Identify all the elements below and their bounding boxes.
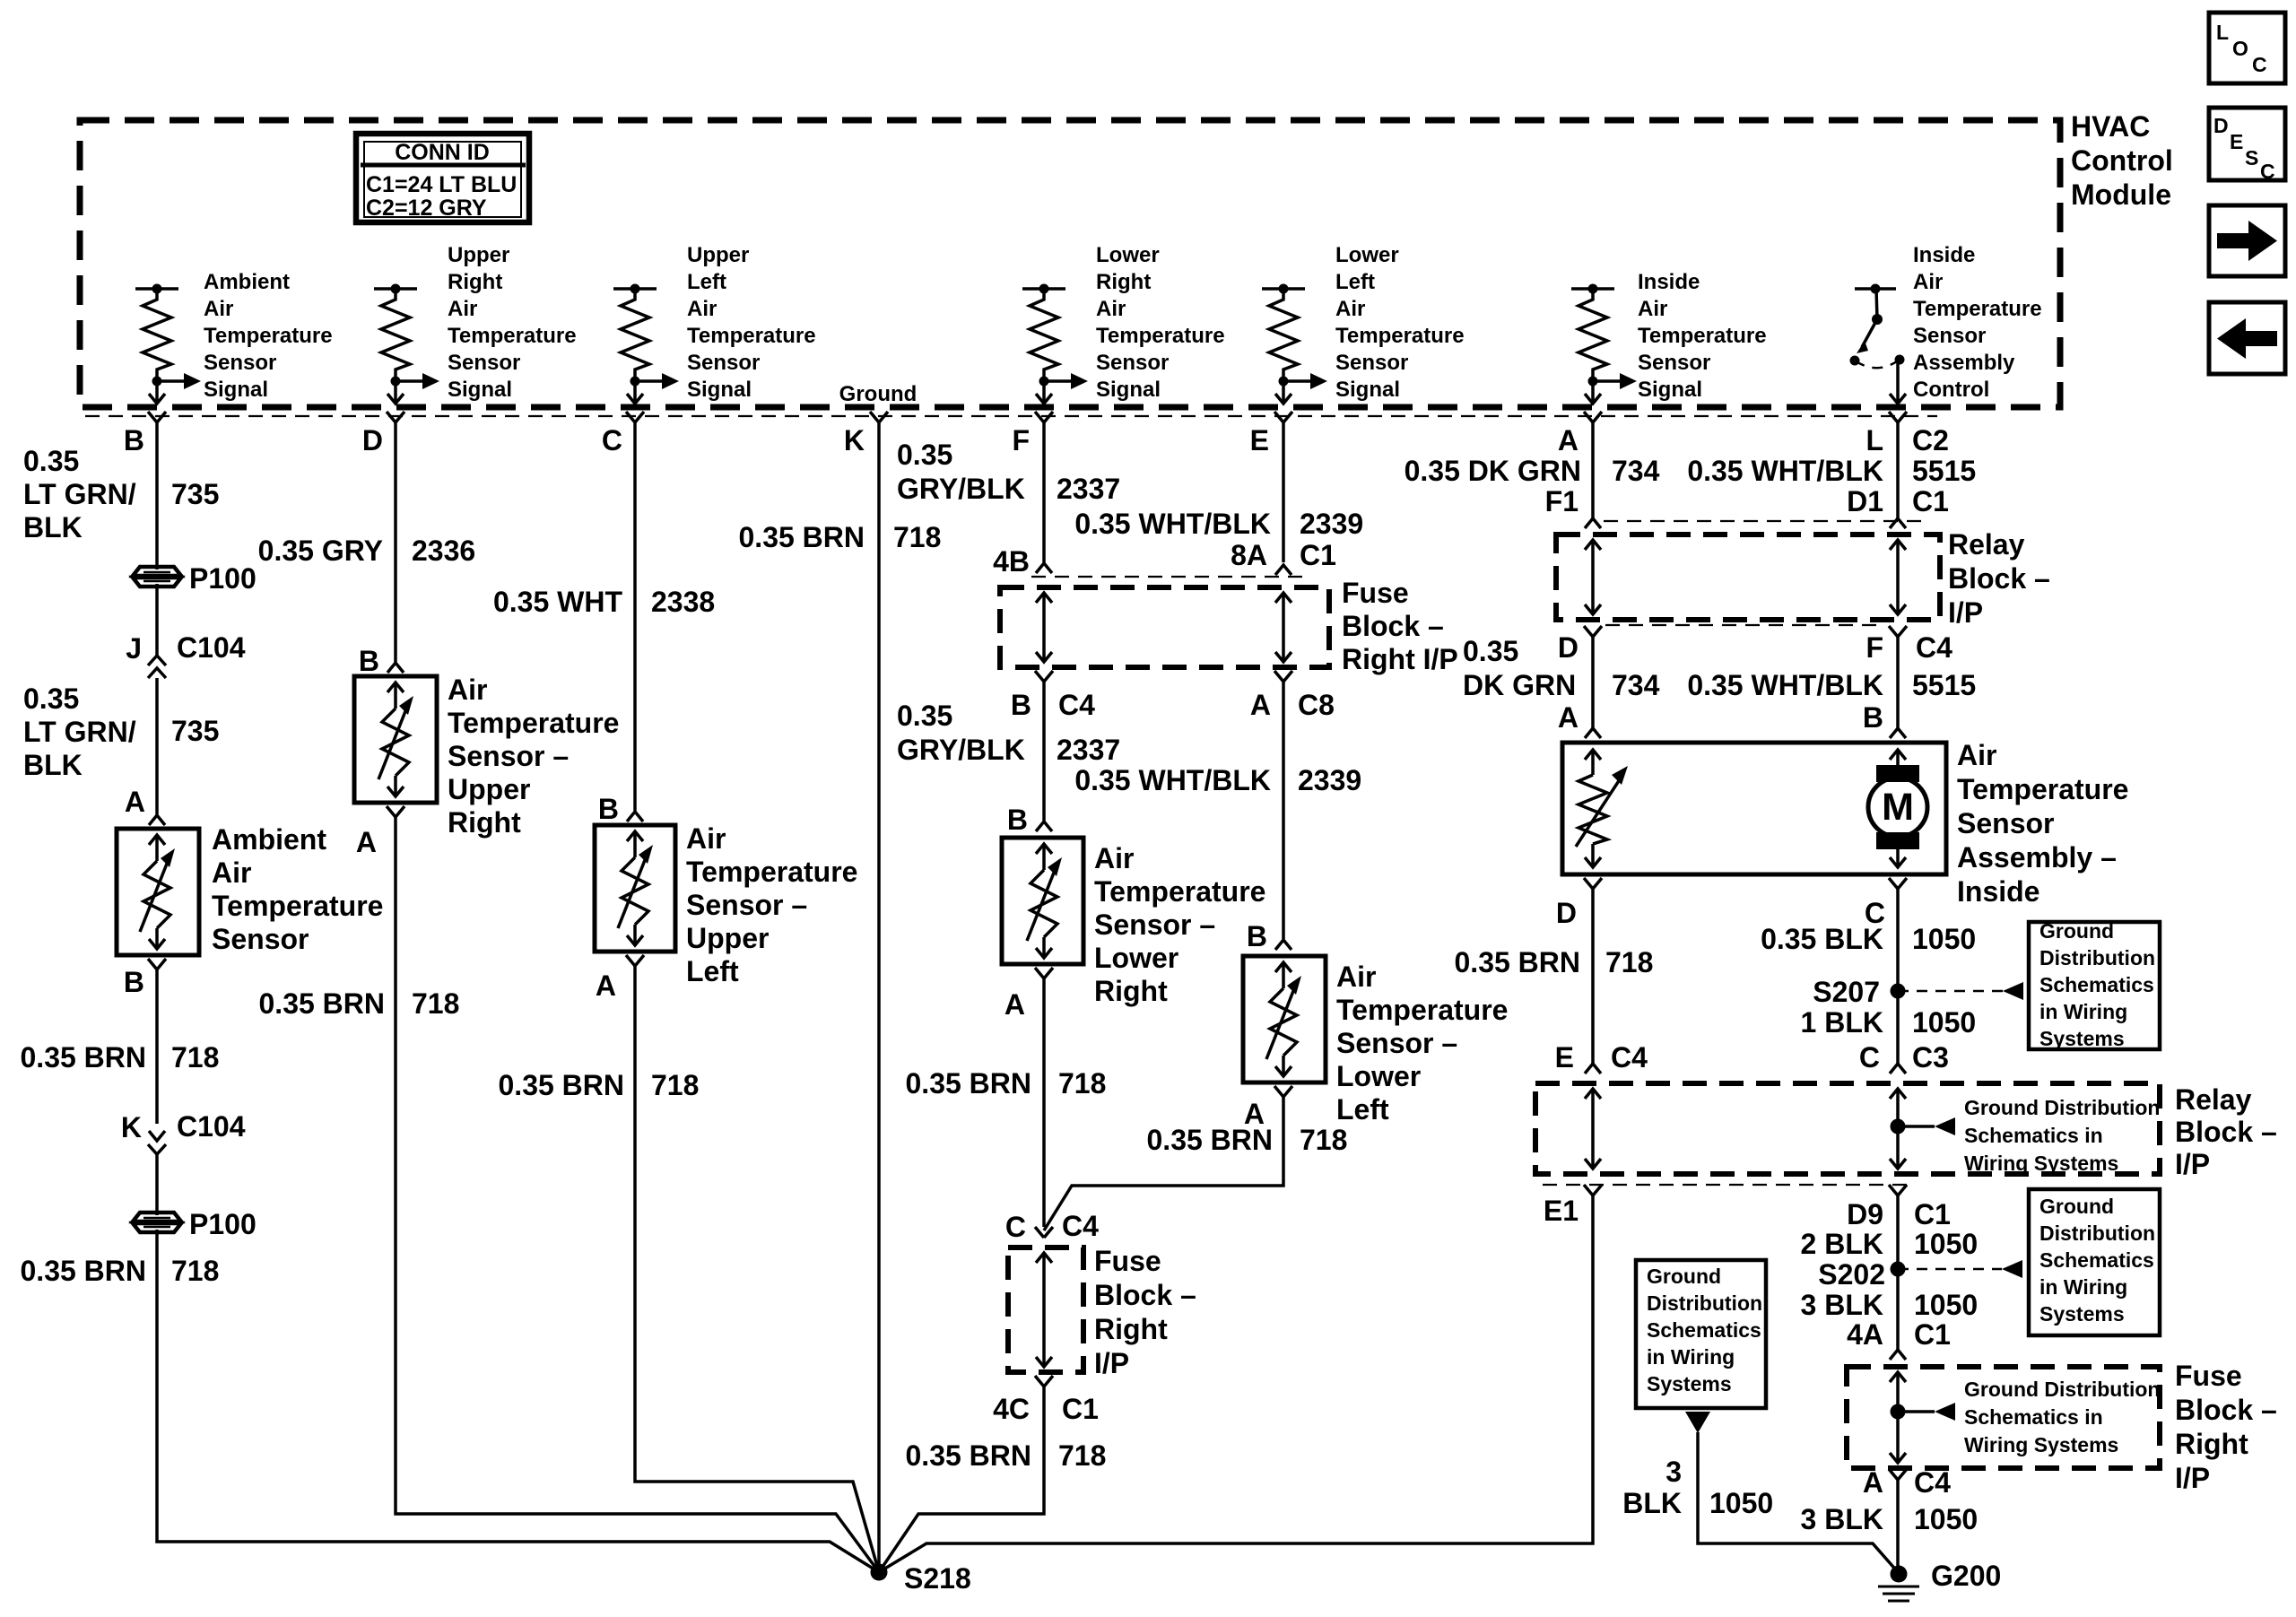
- svg-text:B: B: [1007, 804, 1028, 836]
- svg-text:A: A: [356, 826, 377, 858]
- svg-text:0.35 BRN: 0.35 BRN: [1455, 946, 1581, 978]
- svg-text:BLK: BLK: [23, 511, 83, 543]
- svg-text:5515: 5515: [1912, 669, 1976, 701]
- svg-text:L: L: [1865, 424, 1883, 456]
- svg-text:D: D: [1558, 631, 1578, 664]
- svg-text:A: A: [1250, 689, 1271, 721]
- svg-text:Sensor: Sensor: [212, 923, 309, 955]
- svg-text:K: K: [844, 424, 865, 456]
- svg-text:Sensor: Sensor: [1335, 351, 1408, 375]
- svg-text:B: B: [1247, 920, 1267, 952]
- svg-text:0.35 GRY: 0.35 GRY: [258, 535, 383, 567]
- svg-text:Sensor: Sensor: [204, 351, 276, 375]
- svg-text:4A: 4A: [1847, 1318, 1883, 1351]
- svg-text:Temperature: Temperature: [212, 890, 383, 922]
- svg-text:Upper: Upper: [686, 922, 769, 954]
- svg-text:D: D: [1556, 897, 1577, 929]
- svg-text:K: K: [121, 1111, 142, 1143]
- svg-text:Signal: Signal: [687, 378, 752, 402]
- svg-text:Fuse: Fuse: [2175, 1360, 2242, 1392]
- svg-text:Block –: Block –: [1342, 610, 1444, 642]
- svg-text:Signal: Signal: [1638, 378, 1702, 402]
- svg-text:0.35 DK GRN: 0.35 DK GRN: [1405, 455, 1581, 487]
- svg-text:1050: 1050: [1914, 1228, 1978, 1260]
- svg-text:Schematics: Schematics: [1647, 1318, 1761, 1342]
- svg-text:Air: Air: [448, 297, 477, 321]
- svg-text:718: 718: [171, 1041, 219, 1074]
- svg-text:Inside: Inside: [1913, 243, 1975, 267]
- svg-text:718: 718: [1058, 1439, 1106, 1472]
- svg-text:Systems: Systems: [1647, 1372, 1732, 1395]
- svg-text:C: C: [1005, 1211, 1026, 1243]
- svg-text:I/P: I/P: [2175, 1148, 2210, 1180]
- svg-text:C1=24 LT BLU: C1=24 LT BLU: [366, 172, 517, 197]
- svg-text:2339: 2339: [1300, 508, 1363, 540]
- svg-text:Schematics in: Schematics in: [1964, 1405, 2103, 1429]
- svg-text:Left: Left: [687, 270, 726, 294]
- svg-text:Ground Distribution: Ground Distribution: [1964, 1096, 2160, 1119]
- svg-text:Right: Right: [448, 270, 502, 294]
- svg-text:0.35 BRN: 0.35 BRN: [739, 521, 865, 553]
- svg-text:A: A: [1558, 424, 1578, 456]
- svg-text:C2: C2: [1912, 424, 1949, 456]
- svg-text:F1: F1: [1545, 485, 1578, 517]
- svg-text:BLK: BLK: [23, 749, 83, 781]
- svg-text:Air: Air: [212, 856, 251, 889]
- svg-text:HVAC: HVAC: [2071, 110, 2150, 143]
- svg-text:Air: Air: [1957, 739, 1996, 771]
- svg-text:in Wiring: in Wiring: [1647, 1345, 1735, 1369]
- svg-text:C4: C4: [1914, 1466, 1951, 1499]
- svg-text:E: E: [2230, 130, 2243, 153]
- svg-text:Schematics: Schematics: [2039, 1248, 2154, 1272]
- svg-text:1050: 1050: [1914, 1503, 1978, 1535]
- svg-text:Lower: Lower: [1094, 942, 1178, 974]
- svg-text:3: 3: [1665, 1456, 1682, 1488]
- svg-text:0.35 WHT/BLK: 0.35 WHT/BLK: [1074, 764, 1271, 796]
- svg-text:Right: Right: [1094, 975, 1168, 1007]
- svg-text:O: O: [2232, 37, 2248, 60]
- svg-text:Upper: Upper: [448, 773, 530, 805]
- svg-text:0.35 BRN: 0.35 BRN: [906, 1439, 1032, 1472]
- svg-text:B: B: [124, 966, 144, 998]
- svg-text:Lower: Lower: [1096, 243, 1160, 267]
- svg-text:D9: D9: [1847, 1198, 1883, 1230]
- svg-text:718: 718: [1300, 1124, 1347, 1156]
- svg-text:4B: 4B: [993, 545, 1030, 578]
- svg-text:I/P: I/P: [1948, 596, 1983, 629]
- svg-text:Schematics: Schematics: [2039, 973, 2154, 996]
- svg-text:Fuse: Fuse: [1094, 1245, 1161, 1277]
- svg-text:Ground Distribution: Ground Distribution: [1964, 1378, 2160, 1401]
- svg-text:Air: Air: [1335, 297, 1365, 321]
- svg-text:I/P: I/P: [1094, 1347, 1129, 1379]
- svg-text:Temperature: Temperature: [448, 707, 619, 739]
- svg-text:Block –: Block –: [1948, 562, 2050, 595]
- svg-text:C8: C8: [1298, 689, 1335, 721]
- svg-text:Right: Right: [2175, 1428, 2248, 1460]
- svg-text:Signal: Signal: [1096, 378, 1161, 402]
- svg-text:Right: Right: [448, 806, 521, 839]
- svg-text:1050: 1050: [1912, 923, 1976, 955]
- svg-text:D: D: [362, 424, 383, 456]
- svg-text:Air: Air: [1913, 270, 1943, 294]
- svg-text:L: L: [2216, 21, 2229, 44]
- svg-text:Block –: Block –: [2175, 1116, 2277, 1148]
- svg-text:B: B: [1011, 689, 1031, 721]
- svg-text:Sensor: Sensor: [1638, 351, 1710, 375]
- svg-text:E: E: [1250, 424, 1269, 456]
- svg-text:Air: Air: [204, 297, 233, 321]
- svg-text:B: B: [598, 793, 619, 825]
- svg-text:C104: C104: [177, 631, 246, 664]
- svg-text:0.35 WHT/BLK: 0.35 WHT/BLK: [1074, 508, 1271, 540]
- svg-text:2336: 2336: [412, 535, 475, 567]
- svg-text:C2=12 GRY: C2=12 GRY: [366, 196, 487, 221]
- svg-text:Inside: Inside: [1957, 875, 2039, 908]
- svg-text:Lower: Lower: [1335, 243, 1399, 267]
- svg-text:0.35 WHT: 0.35 WHT: [493, 586, 622, 618]
- svg-text:Block –: Block –: [1094, 1279, 1196, 1311]
- svg-text:Air: Air: [686, 822, 726, 855]
- svg-text:Assembly: Assembly: [1913, 351, 2015, 375]
- svg-text:S218: S218: [904, 1562, 971, 1595]
- svg-text:C1: C1: [1912, 485, 1949, 517]
- svg-text:0.35 BRN: 0.35 BRN: [259, 987, 386, 1020]
- svg-text:S: S: [2245, 146, 2258, 170]
- svg-text:C: C: [2252, 53, 2267, 76]
- svg-text:Control: Control: [2071, 144, 2173, 177]
- svg-text:Lower: Lower: [1336, 1060, 1421, 1092]
- svg-text:Left: Left: [1336, 1093, 1389, 1126]
- svg-text:B: B: [124, 424, 144, 456]
- svg-text:A: A: [1004, 988, 1025, 1021]
- svg-text:718: 718: [1605, 946, 1653, 978]
- svg-text:F: F: [1865, 631, 1883, 664]
- svg-text:2338: 2338: [651, 586, 715, 618]
- svg-text:Temperature: Temperature: [1335, 324, 1465, 348]
- svg-text:A: A: [596, 969, 616, 1002]
- svg-text:3 BLK: 3 BLK: [1801, 1289, 1883, 1321]
- svg-text:0.35: 0.35: [897, 439, 952, 471]
- svg-text:Ground: Ground: [2039, 919, 2114, 943]
- svg-text:Air: Air: [1094, 842, 1134, 874]
- svg-text:Relay: Relay: [2175, 1083, 2252, 1116]
- svg-text:G200: G200: [1931, 1560, 2001, 1592]
- svg-text:Wiring Systems: Wiring Systems: [1964, 1433, 2118, 1456]
- svg-text:4C: 4C: [993, 1393, 1030, 1425]
- svg-text:Sensor: Sensor: [687, 351, 760, 375]
- svg-text:in Wiring: in Wiring: [2039, 1000, 2127, 1023]
- svg-text:C104: C104: [177, 1110, 246, 1143]
- svg-text:Sensor: Sensor: [1913, 324, 1986, 348]
- svg-text:BLK: BLK: [1622, 1487, 1682, 1519]
- svg-text:2337: 2337: [1057, 734, 1120, 766]
- svg-text:Air: Air: [1638, 297, 1667, 321]
- svg-text:0.35 BRN: 0.35 BRN: [499, 1069, 625, 1101]
- svg-text:Block –: Block –: [2175, 1394, 2277, 1426]
- svg-text:Assembly –: Assembly –: [1957, 841, 2117, 874]
- svg-text:C1: C1: [1300, 539, 1336, 571]
- svg-text:0.35: 0.35: [897, 700, 952, 732]
- svg-text:Schematics in: Schematics in: [1964, 1124, 2103, 1147]
- svg-text:S207: S207: [1813, 976, 1880, 1008]
- svg-text:Right I/P: Right I/P: [1342, 643, 1458, 675]
- svg-text:Air: Air: [687, 297, 717, 321]
- svg-text:C1: C1: [1062, 1393, 1099, 1425]
- svg-text:5515: 5515: [1912, 455, 1976, 487]
- svg-text:E1: E1: [1544, 1195, 1578, 1227]
- svg-text:735: 735: [171, 478, 219, 510]
- svg-text:Sensor –: Sensor –: [1336, 1027, 1457, 1059]
- svg-text:Temperature: Temperature: [204, 324, 333, 348]
- svg-text:Module: Module: [2071, 178, 2171, 211]
- svg-text:Right: Right: [1096, 270, 1151, 294]
- svg-text:1 BLK: 1 BLK: [1801, 1006, 1883, 1039]
- svg-text:Distribution: Distribution: [1647, 1291, 1762, 1315]
- svg-text:Sensor: Sensor: [1957, 807, 2054, 839]
- svg-text:DK GRN: DK GRN: [1463, 669, 1576, 701]
- svg-text:0.35 BRN: 0.35 BRN: [21, 1255, 147, 1287]
- svg-text:C4: C4: [1611, 1041, 1648, 1074]
- svg-text:C: C: [1859, 1041, 1880, 1074]
- svg-text:A: A: [1863, 1466, 1883, 1499]
- svg-text:Ambient: Ambient: [204, 270, 290, 294]
- svg-text:0.35 WHT/BLK: 0.35 WHT/BLK: [1687, 455, 1883, 487]
- svg-text:Ground: Ground: [2039, 1195, 2114, 1218]
- svg-text:Systems: Systems: [2039, 1302, 2125, 1326]
- svg-text:3 BLK: 3 BLK: [1801, 1503, 1883, 1535]
- svg-text:1050: 1050: [1709, 1487, 1773, 1519]
- svg-text:2339: 2339: [1298, 764, 1361, 796]
- svg-text:Signal: Signal: [204, 378, 268, 402]
- svg-text:Air: Air: [1096, 297, 1126, 321]
- svg-text:GRY/BLK: GRY/BLK: [897, 734, 1025, 766]
- svg-text:A: A: [1558, 701, 1578, 734]
- svg-text:Ground: Ground: [839, 382, 918, 406]
- svg-text:8A: 8A: [1231, 539, 1267, 571]
- svg-text:Ambient: Ambient: [212, 823, 326, 856]
- svg-text:0.35 BRN: 0.35 BRN: [1147, 1124, 1274, 1156]
- svg-text:Temperature: Temperature: [1336, 994, 1508, 1026]
- svg-text:2337: 2337: [1057, 473, 1120, 505]
- svg-text:D: D: [2213, 114, 2229, 137]
- svg-text:718: 718: [171, 1255, 219, 1287]
- svg-text:Sensor –: Sensor –: [1094, 908, 1215, 941]
- svg-text:0.35 WHT/BLK: 0.35 WHT/BLK: [1687, 669, 1883, 701]
- svg-text:734: 734: [1612, 455, 1660, 487]
- svg-text:Air: Air: [448, 674, 487, 706]
- svg-text:C1: C1: [1914, 1318, 1951, 1351]
- svg-text:2 BLK: 2 BLK: [1801, 1228, 1883, 1260]
- svg-text:C4: C4: [1062, 1210, 1099, 1242]
- svg-text:Temperature: Temperature: [1094, 875, 1265, 908]
- svg-text:D1: D1: [1847, 485, 1883, 517]
- svg-text:S202: S202: [1818, 1258, 1885, 1291]
- svg-text:Sensor: Sensor: [1096, 351, 1169, 375]
- svg-text:Sensor –: Sensor –: [686, 889, 807, 921]
- svg-text:Air: Air: [1336, 961, 1376, 993]
- svg-text:718: 718: [893, 521, 941, 553]
- svg-text:718: 718: [1058, 1067, 1106, 1100]
- svg-text:GRY/BLK: GRY/BLK: [897, 473, 1025, 505]
- svg-text:0.35 BLK: 0.35 BLK: [1761, 923, 1883, 955]
- svg-text:Sensor –: Sensor –: [448, 740, 569, 772]
- svg-text:C: C: [2260, 160, 2275, 183]
- svg-text:Upper: Upper: [448, 243, 509, 267]
- svg-text:CONN ID: CONN ID: [395, 140, 490, 165]
- svg-text:Temperature: Temperature: [1913, 297, 2042, 321]
- svg-text:1050: 1050: [1914, 1289, 1978, 1321]
- svg-text:C1: C1: [1914, 1198, 1951, 1230]
- svg-text:F: F: [1012, 424, 1030, 456]
- svg-text:Sensor: Sensor: [448, 351, 520, 375]
- svg-text:Right: Right: [1094, 1313, 1168, 1345]
- svg-text:0.35: 0.35: [23, 445, 79, 477]
- svg-text:Ground: Ground: [1647, 1265, 1721, 1288]
- svg-text:B: B: [359, 645, 379, 677]
- svg-text:E: E: [1555, 1041, 1574, 1074]
- svg-text:Control: Control: [1913, 378, 1989, 402]
- svg-text:Relay: Relay: [1948, 528, 2025, 561]
- svg-text:C4: C4: [1916, 631, 1952, 664]
- svg-text:0.35: 0.35: [23, 682, 79, 715]
- svg-text:0.35 BRN: 0.35 BRN: [21, 1041, 147, 1074]
- svg-text:B: B: [1863, 701, 1883, 734]
- svg-text:C4: C4: [1058, 689, 1095, 721]
- svg-text:LT GRN/: LT GRN/: [23, 716, 136, 748]
- svg-text:LT GRN/: LT GRN/: [23, 478, 136, 510]
- svg-text:Wiring Systems: Wiring Systems: [1964, 1152, 2118, 1175]
- svg-text:Inside: Inside: [1638, 270, 1700, 294]
- svg-text:C: C: [602, 424, 622, 456]
- svg-text:Left: Left: [686, 955, 739, 987]
- svg-text:Distribution: Distribution: [2039, 946, 2155, 969]
- svg-text:718: 718: [412, 987, 459, 1020]
- svg-text:Temperature: Temperature: [1096, 324, 1225, 348]
- svg-text:Temperature: Temperature: [686, 856, 857, 888]
- svg-text:Distribution: Distribution: [2039, 1221, 2155, 1245]
- svg-text:P100: P100: [189, 1208, 257, 1240]
- svg-text:Signal: Signal: [1335, 378, 1400, 402]
- svg-text:in Wiring: in Wiring: [2039, 1275, 2127, 1299]
- svg-text:718: 718: [651, 1069, 699, 1101]
- svg-text:Temperature: Temperature: [448, 324, 577, 348]
- svg-text:P100: P100: [189, 562, 257, 595]
- svg-text:Temperature: Temperature: [1638, 324, 1767, 348]
- svg-text:Temperature: Temperature: [687, 324, 816, 348]
- svg-text:J: J: [126, 632, 142, 665]
- svg-text:Left: Left: [1335, 270, 1375, 294]
- svg-text:1050: 1050: [1912, 1006, 1976, 1039]
- svg-text:734: 734: [1612, 669, 1660, 701]
- svg-text:M: M: [1882, 786, 1914, 829]
- svg-text:Signal: Signal: [448, 378, 512, 402]
- svg-text:Upper: Upper: [687, 243, 749, 267]
- svg-text:735: 735: [171, 715, 219, 747]
- svg-text:Fuse: Fuse: [1342, 577, 1409, 609]
- svg-text:0.35 BRN: 0.35 BRN: [906, 1067, 1032, 1100]
- svg-text:A: A: [125, 786, 145, 818]
- svg-text:Systems: Systems: [2039, 1027, 2125, 1050]
- svg-text:C3: C3: [1912, 1041, 1949, 1074]
- svg-text:0.35: 0.35: [1463, 635, 1518, 667]
- svg-text:Temperature: Temperature: [1957, 773, 2128, 805]
- svg-text:I/P: I/P: [2175, 1462, 2210, 1494]
